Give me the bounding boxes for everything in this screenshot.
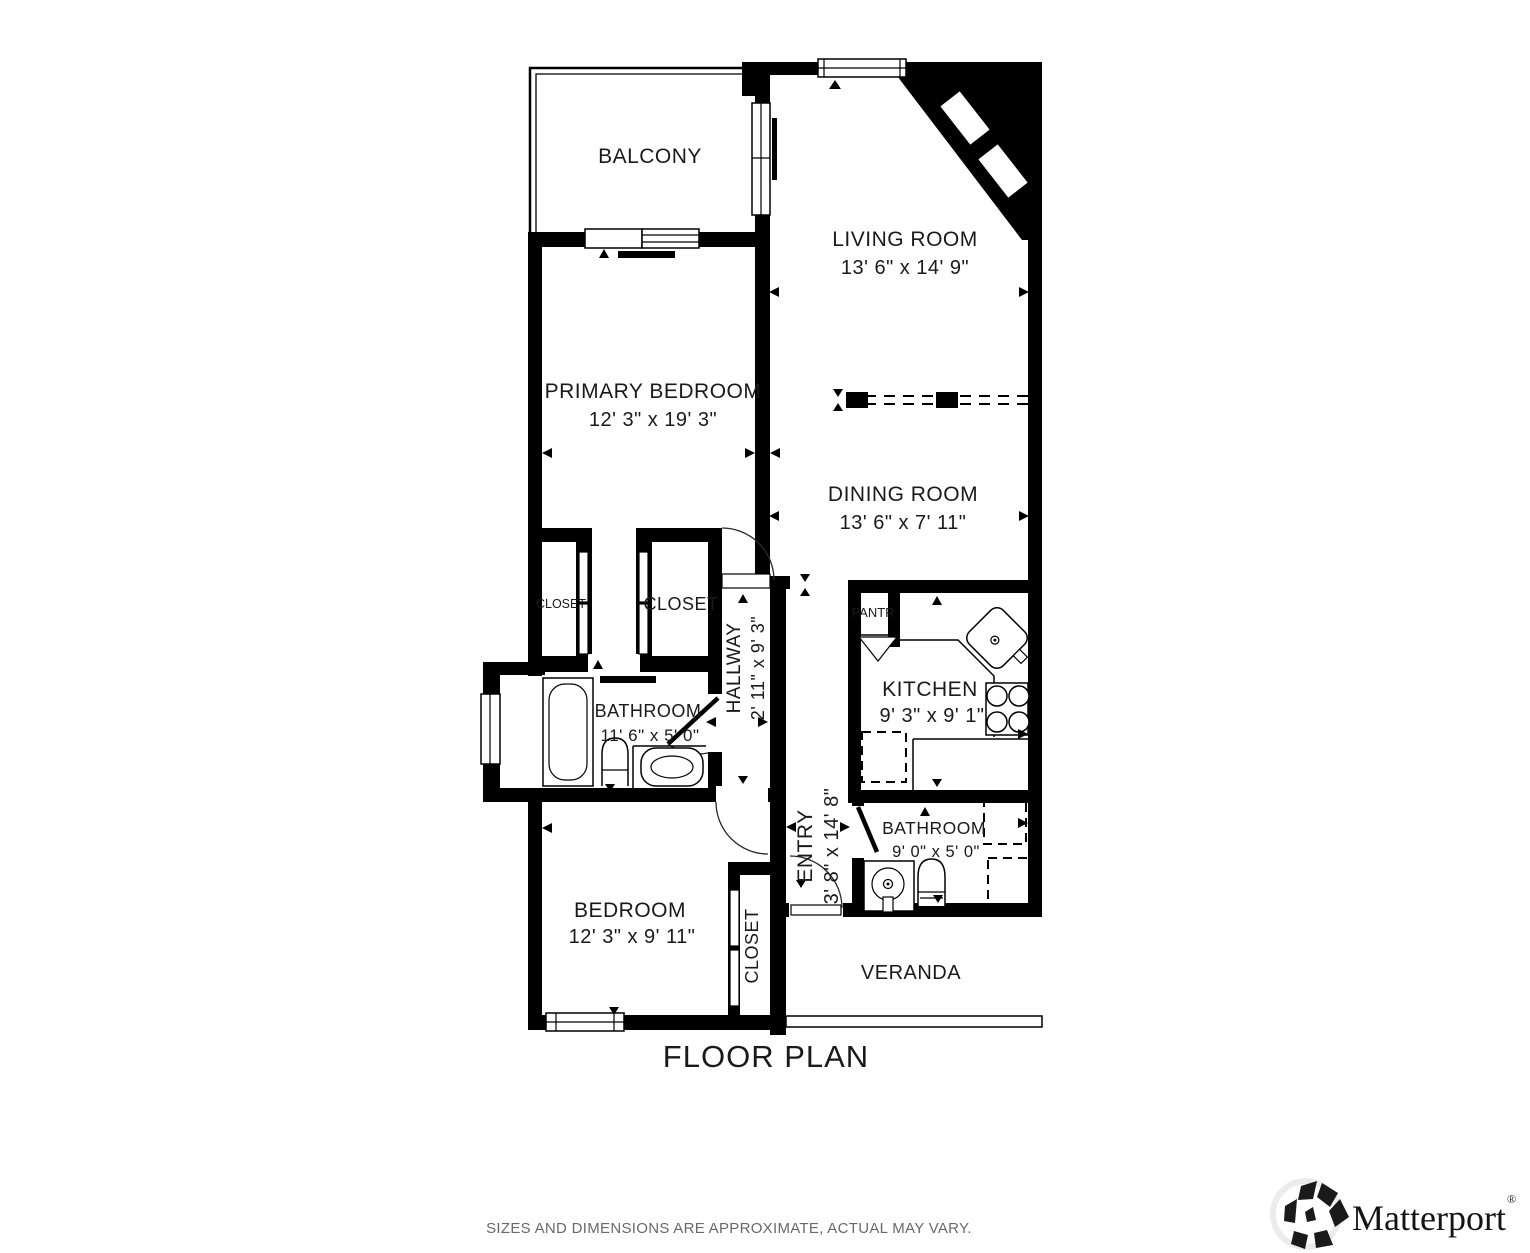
balcony-living-window	[752, 103, 770, 215]
toilet-second	[918, 859, 945, 906]
room-label-bathroom-main: BATHROOM	[595, 701, 702, 721]
bedroom-window	[546, 1013, 624, 1031]
floor-plan-canvas: BALCONY LIVING ROOM 13' 6" x 14' 9" PRIM…	[0, 0, 1530, 1253]
matterport-icon	[1284, 1181, 1349, 1249]
room-label-closet-right: CLOSET	[643, 594, 718, 614]
bathtub	[543, 678, 593, 786]
kitchen-appliance-dashed	[862, 732, 906, 782]
bathroom-second-door	[850, 806, 877, 858]
room-label-veranda: VERANDA	[861, 962, 961, 984]
bathroom-window	[481, 694, 500, 764]
room-label-closet-left: CLOSET	[536, 597, 586, 611]
pantry-door	[857, 635, 897, 661]
toilet-main	[633, 746, 706, 788]
room-dims-primary-bedroom: 12' 3" x 19' 3"	[589, 409, 717, 431]
laundry-dashed-2	[988, 858, 1030, 904]
room-dims-kitchen: 9' 3" x 9' 1"	[879, 705, 984, 727]
room-label-kitchen: KITCHEN	[882, 678, 978, 701]
room-dims-hallway: 2' 11" x 9' 3"	[748, 616, 768, 720]
room-dims-bedroom: 12' 3" x 9' 11"	[569, 926, 696, 948]
brand-name: Matterport	[1352, 1198, 1506, 1238]
floor-plan-page: { "title": "FLOOR PLAN", "disclaimer": "…	[0, 0, 1530, 1253]
room-label-dining-room: DINING ROOM	[828, 483, 978, 506]
room-label-primary-bedroom: PRIMARY BEDROOM	[545, 380, 762, 403]
diagonal-corner-wall	[898, 62, 1042, 240]
room-dims-entry: 3' 8" x 14' 8"	[821, 788, 843, 905]
room-label-pantry: PANTR	[851, 605, 894, 620]
room-dims-living-room: 13' 6" x 14' 9"	[841, 257, 969, 279]
page-title: FLOOR PLAN	[663, 1039, 869, 1074]
room-dims-bathroom-second: 9' 0" x 5' 0"	[892, 843, 980, 861]
brand-registered-mark: ®	[1507, 1192, 1517, 1206]
pedestal-sink	[602, 738, 628, 786]
wall-mount-bar	[772, 118, 777, 180]
matterport-logo: Matterport ®	[1273, 1181, 1517, 1249]
room-label-closet-bedroom: CLOSET	[742, 908, 762, 983]
room-divider-dashed	[846, 392, 1030, 408]
stove	[986, 683, 1029, 735]
room-label-living-room: LIVING ROOM	[832, 228, 978, 251]
room-label-entry: ENTRY	[794, 809, 817, 882]
room-label-balcony: BALCONY	[598, 145, 702, 168]
room-label-hallway: HALLWAY	[724, 623, 745, 714]
room-label-bedroom: BEDROOM	[574, 899, 686, 922]
room-dims-bathroom-main: 11' 6" x 5' 0"	[601, 726, 700, 745]
kitchen-sink	[963, 604, 1039, 680]
bedroom-door	[716, 786, 768, 854]
disclaimer-text: SIZES AND DIMENSIONS ARE APPROXIMATE, AC…	[486, 1220, 972, 1237]
room-label-bathroom-second: BATHROOM	[882, 818, 986, 838]
veranda-railing	[786, 1016, 1042, 1027]
room-dims-dining-room: 13' 6" x 7' 11"	[840, 512, 967, 534]
vanity-second-bathroom	[864, 861, 914, 912]
living-room-window	[818, 59, 906, 77]
